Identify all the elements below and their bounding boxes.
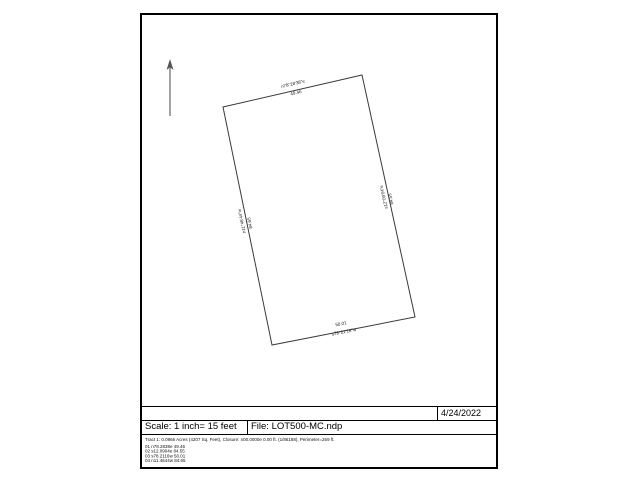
- date-cell: 4/24/2022: [437, 407, 496, 420]
- traverse-list: 01 n78.2838e 49.46 02 s12.0904e 84.55 03…: [145, 445, 495, 464]
- north-arrow-icon: [167, 59, 174, 116]
- titleblock-scale-row: Scale: 1 inch= 15 feet File: LOT500-MC.n…: [142, 421, 496, 435]
- tract-summary: Tract 1: 0.0966 Acres (4207 Sq. Feet), C…: [145, 437, 495, 442]
- file-cell: File: LOT500-MC.ndp: [248, 421, 496, 434]
- parcel-outline: [223, 75, 415, 345]
- scale-cell: Scale: 1 inch= 15 feet: [142, 421, 248, 434]
- titleblock-top-strip: 4/24/2022: [142, 406, 496, 421]
- traverse-line: 04 n11.4644w 84.65: [145, 459, 495, 464]
- tract-info-block: Tract 1: 0.0966 Acres (4207 Sq. Feet), C…: [142, 435, 496, 466]
- screenshot-root: { "titleblock": { "date": "4/24/2022", "…: [0, 0, 640, 480]
